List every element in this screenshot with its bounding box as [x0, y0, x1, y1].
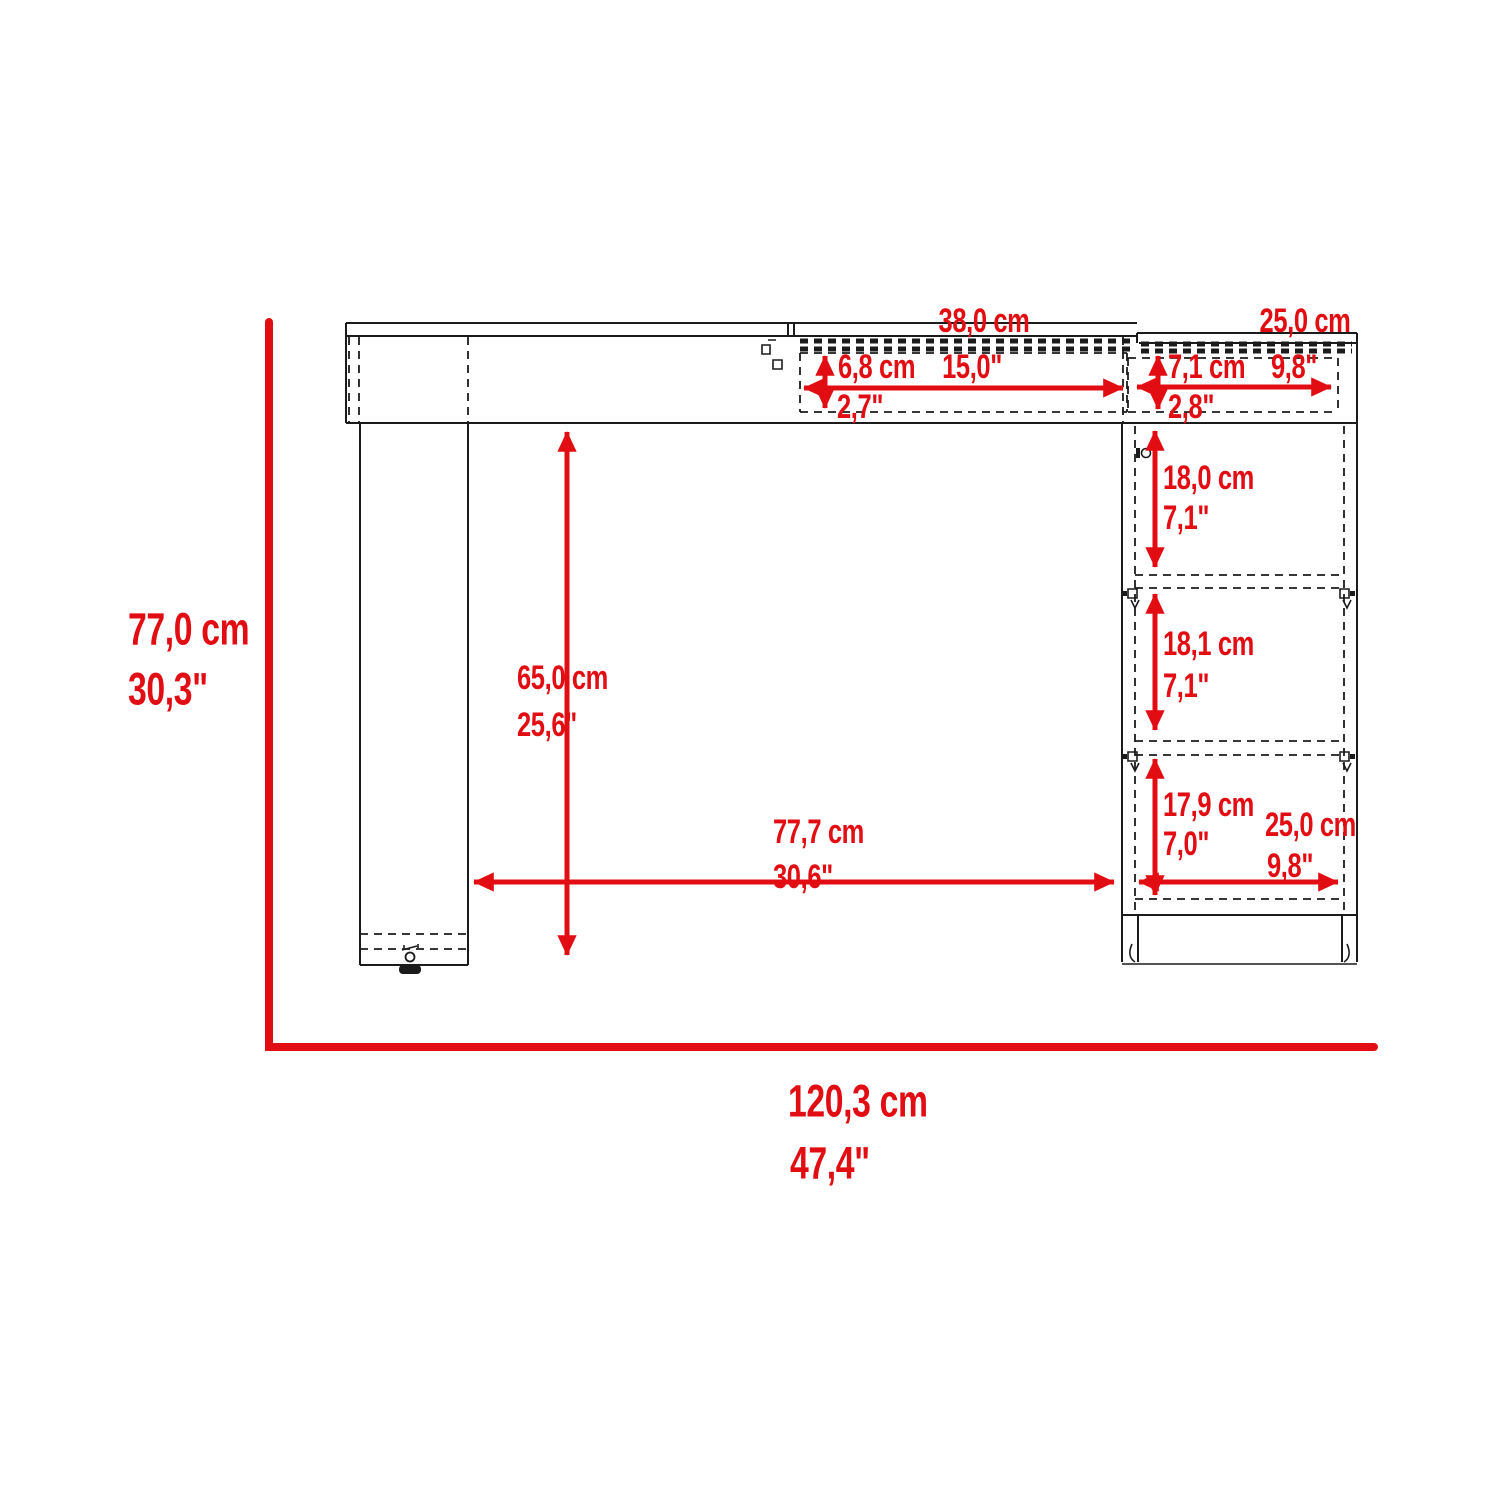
desk-technical-drawing	[0, 0, 1500, 1500]
dim-overall-height-cm: 77,0 cm	[128, 607, 249, 652]
dim-overall-width-in: 47,4"	[790, 1141, 870, 1186]
dim-right-drawer-width-cm: 25,0 cm	[1260, 304, 1351, 338]
dim-knee-width-in: 30,6"	[773, 860, 833, 894]
dim-knee-height-in: 25,6"	[517, 708, 577, 742]
dim-mid-drawer-width-cm: 38,0 cm	[939, 304, 1030, 338]
dim-overall-width-cm: 120,3 cm	[788, 1079, 928, 1124]
dim-shelf-bottom-cm: 17,9 cm	[1163, 788, 1254, 822]
dim-shelf-bottom-in: 7,0"	[1163, 827, 1209, 861]
dim-cabinet-width-cm: 25,0 cm	[1265, 808, 1356, 842]
dim-shelf-middle-cm: 18,1 cm	[1163, 627, 1254, 661]
dim-right-drawer-height-cm: 7,1 cm	[1168, 350, 1245, 384]
dim-shelf-top-in: 7,1"	[1163, 501, 1209, 535]
dim-knee-height-cm: 65,0 cm	[517, 661, 608, 695]
dim-right-drawer-width-in: 9,8"	[1271, 350, 1317, 384]
dim-knee-width-cm: 77,7 cm	[773, 815, 864, 849]
dim-cabinet-width-in: 9,8"	[1267, 849, 1313, 883]
dim-mid-drawer-width-in: 15,0"	[942, 350, 1002, 384]
dim-mid-drawer-height-cm: 6,8 cm	[838, 350, 915, 384]
dim-mid-drawer-height-in: 2,7"	[837, 390, 883, 424]
dim-right-drawer-height-in: 2,8"	[1168, 390, 1214, 424]
dimension-diagram: 77,0 cm 30,3" 120,3 cm 47,4" 38,0 cm 15,…	[0, 0, 1500, 1500]
dim-shelf-top-cm: 18,0 cm	[1163, 461, 1254, 495]
dim-overall-height-in: 30,3"	[128, 667, 208, 712]
dim-shelf-middle-in: 7,1"	[1163, 669, 1209, 703]
